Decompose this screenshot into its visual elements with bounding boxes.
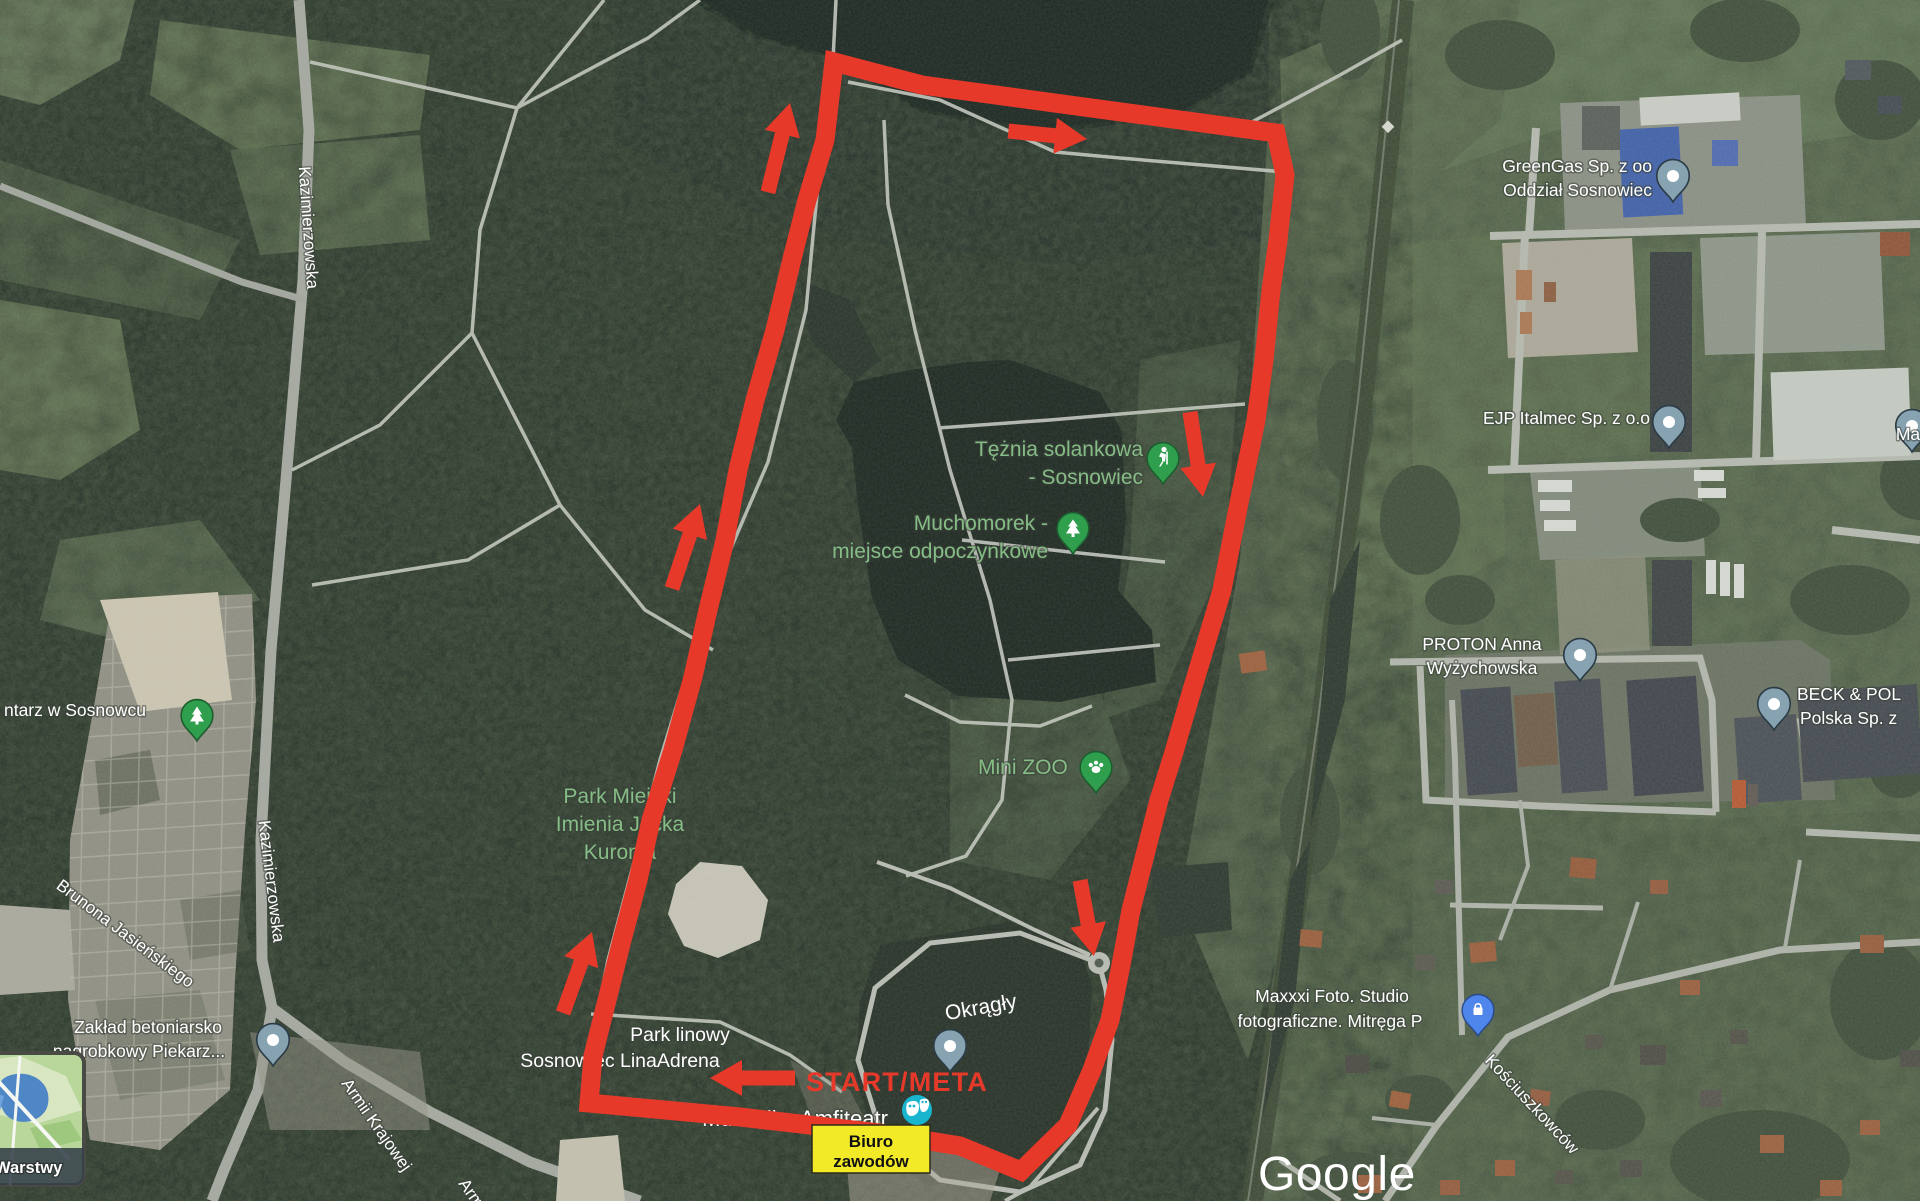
svg-text:EJP Italmec Sp. z o.o: EJP Italmec Sp. z o.o — [1483, 408, 1650, 428]
svg-text:ntarz w Sosnowcu: ntarz w Sosnowcu — [4, 700, 146, 720]
svg-text:miejsce odpoczynkowe: miejsce odpoczynkowe — [832, 540, 1048, 563]
svg-text:Muchomorek -: Muchomorek - — [914, 512, 1048, 535]
svg-text:- Sosnowiec: - Sosnowiec — [1029, 466, 1143, 489]
svg-text:zawodów: zawodów — [833, 1152, 909, 1171]
svg-text:PROTON Anna: PROTON Anna — [1422, 634, 1542, 654]
svg-text:Imienia Jacka: Imienia Jacka — [556, 813, 685, 836]
svg-text:Ma: Ma — [1896, 424, 1920, 444]
svg-text:Mini ZOO: Mini ZOO — [978, 756, 1068, 779]
svg-text:Tężnia solankowa: Tężnia solankowa — [975, 438, 1143, 461]
svg-text:Polska Sp. z: Polska Sp. z — [1800, 708, 1897, 728]
svg-text:Sosnowiec LinaAdrena: Sosnowiec LinaAdrena — [520, 1050, 720, 1072]
svg-text:fotograficzne. Mitręga P: fotograficzne. Mitręga P — [1238, 1011, 1423, 1031]
svg-text:START/META: START/META — [806, 1067, 988, 1097]
svg-text:Biuro: Biuro — [849, 1132, 893, 1151]
svg-text:Zakład betoniarsko: Zakład betoniarsko — [74, 1017, 222, 1037]
svg-text:Oddział Sosnowiec: Oddział Sosnowiec — [1503, 180, 1652, 200]
svg-text:BECK & POL: BECK & POL — [1797, 684, 1901, 704]
svg-text:Warstwy: Warstwy — [0, 1159, 63, 1177]
svg-text:Wyżychowska: Wyżychowska — [1427, 658, 1538, 678]
svg-text:GreenGas Sp. z oo: GreenGas Sp. z oo — [1502, 156, 1652, 176]
svg-text:Maxxxi Foto. Studio: Maxxxi Foto. Studio — [1255, 986, 1409, 1006]
svg-text:Park linowy: Park linowy — [630, 1024, 730, 1046]
svg-text:Google: Google — [1258, 1148, 1416, 1201]
